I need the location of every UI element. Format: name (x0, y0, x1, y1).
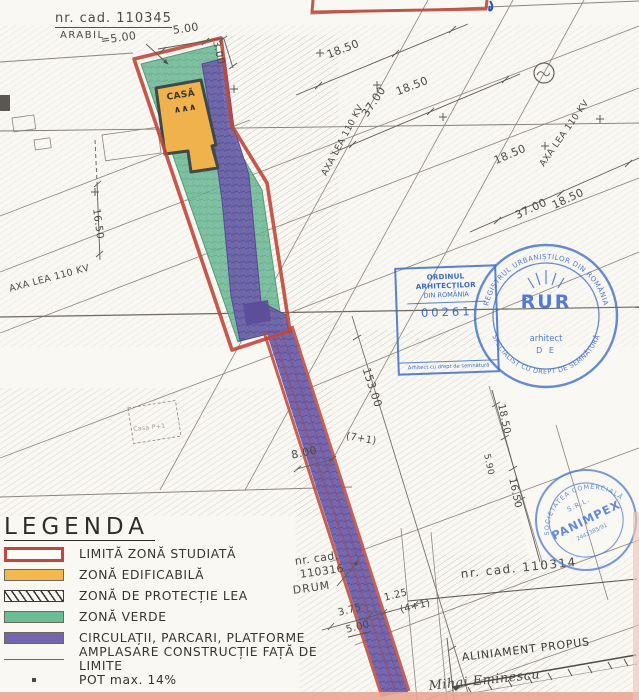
legend-item-circulatii: CIRCULAȚII, PARCARI, PLATFORME (4, 630, 349, 646)
scan-edge-band (0, 692, 639, 700)
legend-item-limita: LIMITĂ ZONĂ STUDIATĂ (4, 546, 349, 562)
legend-item-protectie: ZONĂ DE PROTECȚIE LEA (4, 588, 349, 604)
swatch-placement-line (4, 659, 64, 660)
legend-label: ZONĂ EDIFICABILĂ (79, 568, 204, 582)
legend-item-pot: POT max. 14% (4, 672, 349, 688)
parcel-cad-number: nr. cad. 110345 (55, 11, 172, 28)
swatch-buildable-zone (4, 569, 64, 581)
swatch-lea-protection (4, 590, 64, 602)
scan-edge-strip (633, 512, 639, 700)
land-use-label: ARABIL (60, 30, 105, 41)
parking-platform (243, 300, 271, 325)
legend-item-edificabila: ZONĂ EDIFICABILĂ (4, 567, 349, 583)
swatch-pot-dot (4, 674, 64, 686)
legend-label: AMPLASARE CONSTRUCȚIE FAȚĂ DE LIMITE (79, 645, 349, 673)
pen-mark (489, 1, 492, 11)
title-block-red-box (312, 0, 487, 12)
panimpex-round-stamp: SOCIETATEA COMERCIALĂ S.R.L. PANIMPEX 24… (530, 464, 639, 576)
rur-initials: D E (536, 346, 556, 355)
site-plan-sheet: nr. cad. 110345 ARABIL 5.00 =5.00 3.00 1… (0, 0, 639, 700)
rur-round-stamp: REGISTRUL URBANIȘTILOR DIN ROMÂNIA SPECI… (470, 240, 622, 392)
legend-title: LEGENDA (4, 514, 155, 541)
swatch-study-limit (4, 547, 64, 562)
swatch-green-zone (4, 611, 64, 623)
legend-label: ZONĂ DE PROTECȚIE LEA (79, 589, 248, 603)
rays-icon (528, 270, 564, 288)
swatch-circulation (4, 632, 64, 644)
rur-role: arhitect (530, 334, 564, 344)
legend: LEGENDA LIMITĂ ZONĂ STUDIATĂ ZONĂ EDIFIC… (4, 514, 349, 688)
legend-item-verde: ZONĂ VERDE (4, 609, 349, 625)
legend-item-amplasare: AMPLASARE CONSTRUCȚIE FAȚĂ DE LIMITE (4, 651, 349, 667)
legend-label: POT max. 14% (79, 673, 177, 687)
legend-label: LIMITĂ ZONĂ STUDIATĂ (79, 547, 236, 561)
legend-label: CIRCULAȚII, PARCARI, PLATFORME (79, 631, 305, 645)
legend-label: ZONĂ VERDE (79, 610, 167, 624)
rur-acronym: RUR (521, 291, 572, 313)
